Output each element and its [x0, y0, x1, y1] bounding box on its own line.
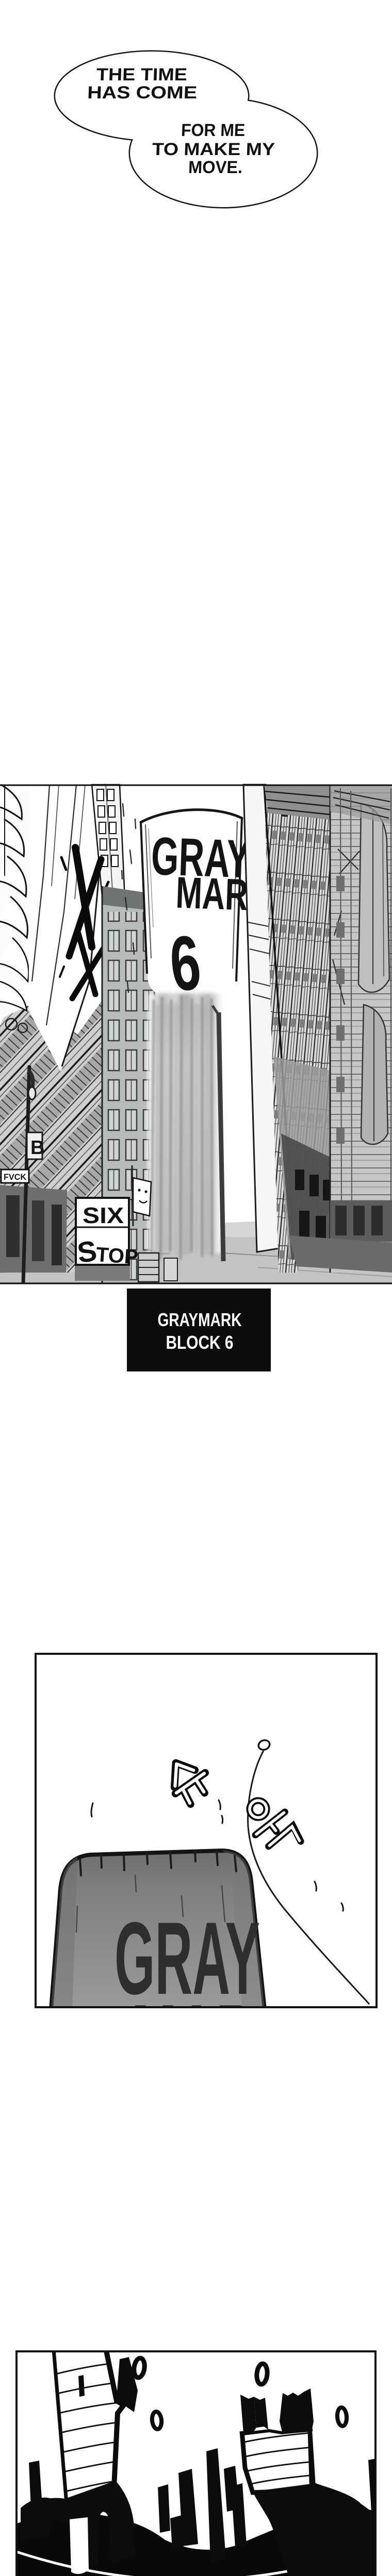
svg-text:GRAYMARK: GRAYMARK — [158, 1309, 242, 1330]
svg-text:MOVE.: MOVE. — [188, 158, 242, 177]
svg-text:TO MAKE MY: TO MAKE MY — [152, 140, 275, 159]
svg-text:BLOCK 6: BLOCK 6 — [166, 1332, 234, 1353]
svg-text:MAR: MAR — [175, 868, 249, 920]
svg-text:HAS COME: HAS COME — [87, 83, 198, 103]
svg-text:THE TIME: THE TIME — [96, 65, 187, 84]
svg-text:TOP: TOP — [95, 1243, 139, 1269]
svg-text:SIX: SIX — [83, 1203, 124, 1228]
svg-text:FVCK: FVCK — [4, 1172, 27, 1182]
svg-text:B: B — [30, 1137, 44, 1159]
svg-text:FOR ME: FOR ME — [181, 121, 246, 140]
